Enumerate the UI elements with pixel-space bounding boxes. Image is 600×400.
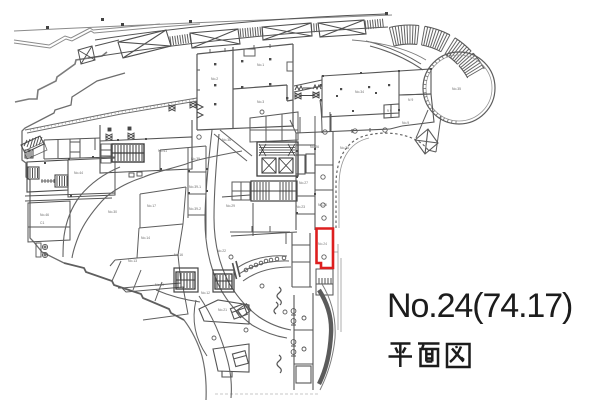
svg-text:No.24: No.24 [318,242,327,246]
svg-text:No.16: No.16 [174,253,183,257]
svg-text:No.25: No.25 [318,203,327,207]
svg-text:No.1: No.1 [257,63,264,67]
svg-text:No.10: No.10 [155,283,164,287]
svg-text:No.12: No.12 [201,291,210,295]
svg-text:No.17: No.17 [147,204,156,208]
svg-text:No.9: No.9 [402,121,409,125]
svg-text:No.2: No.2 [211,77,218,81]
svg-text:No.29: No.29 [226,204,235,208]
svg-text:No.39-2: No.39-2 [189,207,201,211]
svg-text:No.23: No.23 [296,205,305,209]
svg-text:No.38: No.38 [222,138,231,142]
svg-text:No.35: No.35 [452,87,461,91]
svg-text:No.34: No.34 [355,90,364,94]
svg-text:No.21: No.21 [218,308,227,312]
svg-text:No.27: No.27 [299,181,308,185]
svg-text:C1: C1 [40,221,44,225]
svg-text:No.46: No.46 [40,213,49,217]
svg-text:No.30: No.30 [108,210,117,214]
svg-text:No.39: No.39 [191,157,200,161]
svg-text:No.14: No.14 [141,236,150,240]
svg-text:No.24(74.17): No.24(74.17) [387,287,572,325]
svg-text:No.36: No.36 [340,146,349,150]
svg-text:No.39-1: No.39-1 [189,185,201,189]
svg-text:N 9: N 9 [408,98,413,102]
svg-text:No.3: No.3 [257,100,264,104]
svg-text:No.44: No.44 [74,171,83,175]
svg-text:No.13: No.13 [128,259,137,263]
svg-text:No.22: No.22 [217,249,226,253]
svg-text:9 9: 9 9 [387,109,392,113]
svg-text:No.41: No.41 [158,149,167,153]
